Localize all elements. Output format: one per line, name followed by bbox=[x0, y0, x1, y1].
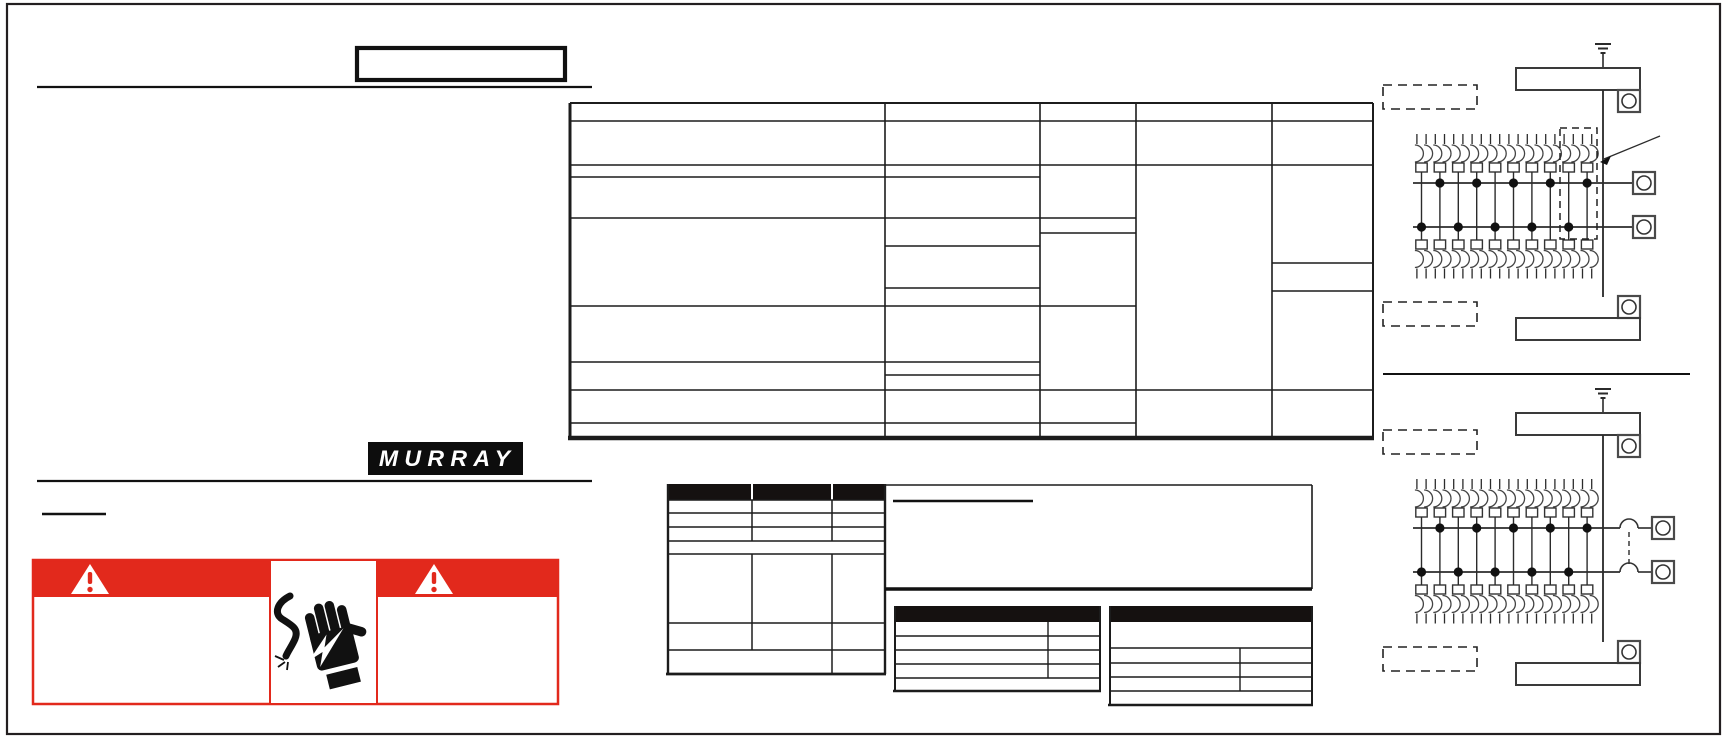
main-breaker-pole bbox=[1620, 519, 1638, 528]
bus-tap-dot bbox=[1454, 567, 1463, 576]
bus-tap-dot bbox=[1546, 178, 1555, 187]
page-border bbox=[7, 4, 1720, 734]
ground-icon bbox=[1595, 44, 1611, 68]
neutral-bar bbox=[1516, 413, 1640, 435]
instruction-sheet: MURRAY bbox=[0, 0, 1728, 738]
bus-tap-dot bbox=[1546, 523, 1555, 532]
bus-tap-dot bbox=[1417, 567, 1426, 576]
wiring-diagram-main-breaker bbox=[1383, 389, 1674, 685]
murray-logo: MURRAY bbox=[368, 442, 523, 475]
title-box bbox=[357, 48, 565, 80]
murray-wordmark: MURRAY bbox=[375, 448, 517, 470]
bus-tap-dot bbox=[1472, 523, 1481, 532]
bus-tap-dot bbox=[1435, 178, 1444, 187]
label-box-dashed bbox=[1383, 302, 1477, 326]
bus-tap-dot bbox=[1564, 567, 1573, 576]
neutral-bar bbox=[1516, 663, 1640, 685]
bus-tap-dot bbox=[1509, 523, 1518, 532]
ground-icon bbox=[1595, 389, 1611, 413]
bus-tap-dot bbox=[1509, 178, 1518, 187]
neutral-bar bbox=[1516, 68, 1640, 90]
callout-arrow bbox=[1604, 136, 1660, 159]
spec-table-right bbox=[1108, 606, 1313, 705]
bus-tap-dot bbox=[1527, 222, 1536, 231]
main-breaker-pole bbox=[1620, 563, 1638, 572]
bus-tap-dot bbox=[1435, 523, 1444, 532]
bus-tap-dot bbox=[1417, 222, 1426, 231]
bus-tap-dot bbox=[1491, 222, 1500, 231]
bus-tap-dot bbox=[1564, 222, 1573, 231]
callout-arrowhead bbox=[1600, 156, 1611, 165]
spec-table-left bbox=[893, 606, 1101, 691]
note-panel bbox=[885, 485, 1312, 589]
sheet-artwork bbox=[0, 0, 1728, 738]
branch-breakers bbox=[1415, 134, 1598, 279]
label-box-dashed bbox=[1383, 647, 1477, 671]
bus-tap-dot bbox=[1454, 222, 1463, 231]
warning-label bbox=[33, 560, 558, 704]
bus-tap-dot bbox=[1527, 567, 1536, 576]
bus-tap-dot bbox=[1583, 178, 1592, 187]
bus-tap-dot bbox=[1472, 178, 1481, 187]
branch-breakers bbox=[1415, 479, 1598, 624]
parts-table bbox=[666, 484, 886, 674]
bus-tap-dot bbox=[1491, 567, 1500, 576]
bus-tap-dot bbox=[1583, 523, 1592, 532]
catalog-table bbox=[568, 103, 1374, 438]
wiring-diagram-main-lug bbox=[1383, 44, 1660, 340]
label-box-dashed bbox=[1383, 85, 1477, 109]
label-box-dashed bbox=[1383, 430, 1477, 454]
neutral-bar bbox=[1516, 318, 1640, 340]
